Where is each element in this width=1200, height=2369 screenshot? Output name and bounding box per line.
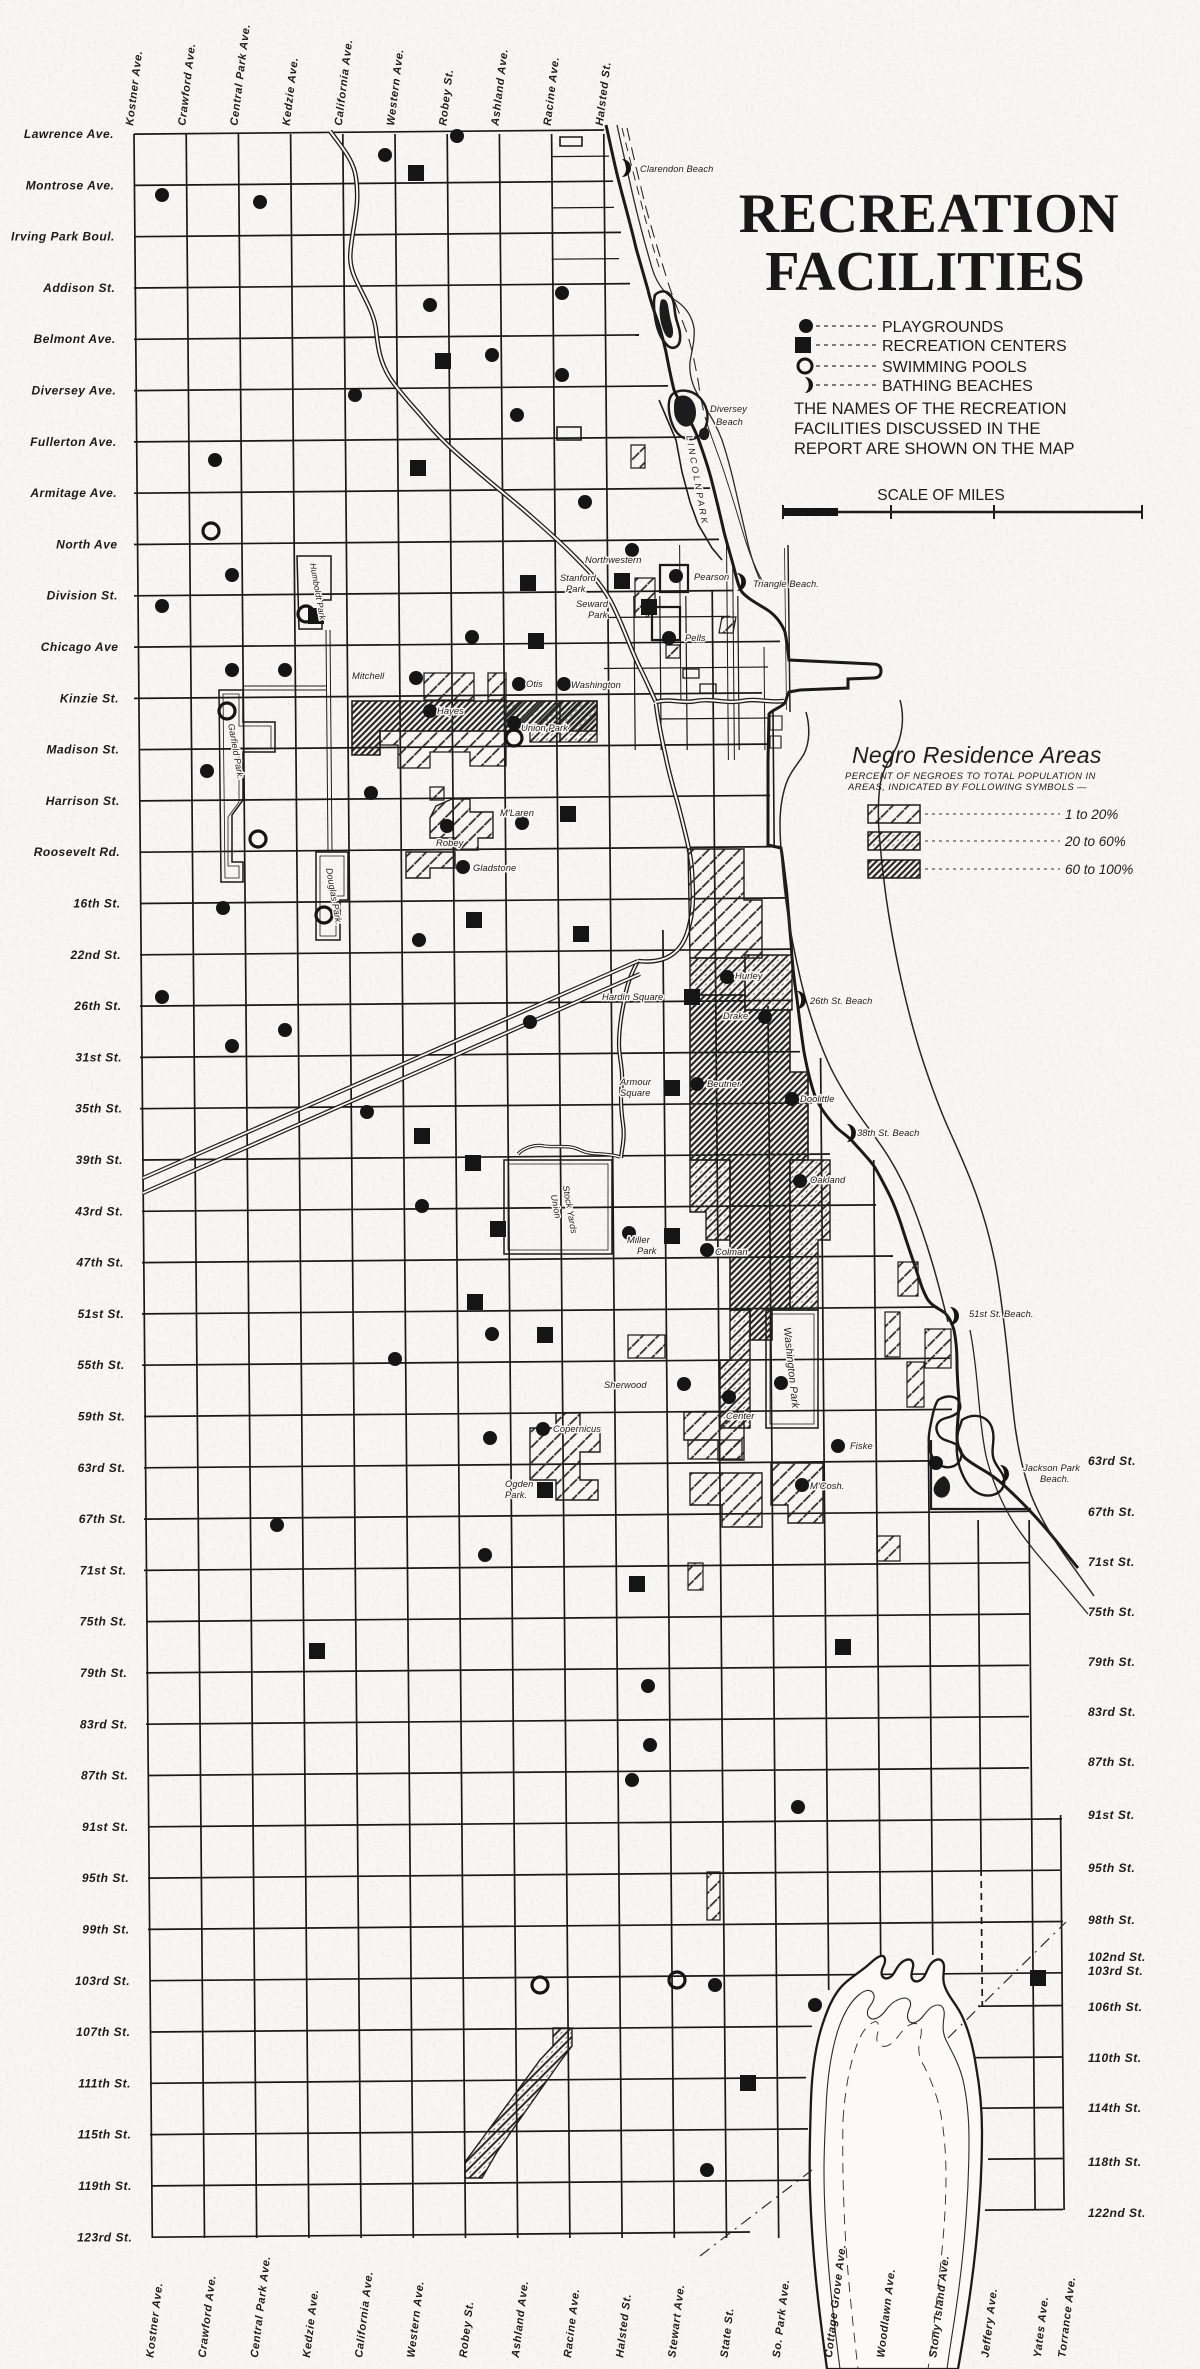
svg-text:119th St.: 119th St. <box>78 2179 132 2193</box>
svg-text:67th St.: 67th St. <box>79 1512 126 1526</box>
svg-text:95th St.: 95th St. <box>1088 1861 1135 1875</box>
svg-text:Ogden: Ogden <box>505 1479 533 1489</box>
svg-text:63rd St.: 63rd St. <box>1088 1454 1136 1468</box>
svg-text:Seward: Seward <box>576 599 609 609</box>
svg-text:Copernicus: Copernicus <box>553 1424 601 1434</box>
svg-text:Mitchell: Mitchell <box>352 671 385 681</box>
svg-text:122nd St.: 122nd St. <box>1088 2206 1146 2220</box>
svg-text:Diversey Ave.: Diversey Ave. <box>31 384 116 398</box>
svg-text:118th St.: 118th St. <box>1088 2155 1142 2169</box>
svg-text:Oakland: Oakland <box>810 1175 846 1185</box>
svg-text:THE NAMES OF THE RECREATION: THE NAMES OF THE RECREATION <box>794 400 1067 418</box>
svg-text:M′Cosh.: M′Cosh. <box>810 1481 844 1491</box>
svg-text:103rd St.: 103rd St. <box>75 1974 130 1988</box>
svg-text:71st St.: 71st St. <box>80 1563 127 1577</box>
svg-text:Park: Park <box>637 1246 658 1256</box>
svg-text:Fiske: Fiske <box>850 1441 873 1451</box>
svg-text:39th St.: 39th St. <box>76 1153 123 1167</box>
svg-text:North Ave: North Ave <box>56 537 117 551</box>
svg-text:Diversey: Diversey <box>710 404 748 414</box>
svg-text:RECREATION: RECREATION <box>739 183 1119 245</box>
svg-text:Madison St.: Madison St. <box>47 743 120 757</box>
svg-text:1 to 20%: 1 to 20% <box>1065 807 1118 822</box>
svg-text:RECREATION CENTERS: RECREATION CENTERS <box>882 338 1067 355</box>
svg-text:Doolittle: Doolittle <box>800 1094 835 1104</box>
svg-text:Jackson Park: Jackson Park <box>1022 1463 1081 1473</box>
svg-text:79th St.: 79th St. <box>80 1666 127 1680</box>
svg-text:Hurley: Hurley <box>735 971 764 981</box>
svg-text:26th St. Beach: 26th St. Beach <box>809 996 872 1006</box>
svg-text:115th St.: 115th St. <box>78 2128 132 2142</box>
svg-text:Lawrence Ave.: Lawrence Ave. <box>24 127 114 141</box>
svg-text:Drake: Drake <box>723 1011 748 1021</box>
svg-text:Fullerton Ave.: Fullerton Ave. <box>30 435 117 449</box>
svg-text:Negro Residence Areas: Negro Residence Areas <box>852 742 1102 768</box>
svg-text:Addison St.: Addison St. <box>42 281 115 295</box>
svg-text:AREAS, INDICATED BY FOLLOWING: AREAS, INDICATED BY FOLLOWING SYMBOLS — <box>847 782 1087 793</box>
svg-text:59th St.: 59th St. <box>78 1410 125 1424</box>
svg-text:79th St.: 79th St. <box>1088 1655 1135 1669</box>
svg-text:83rd St.: 83rd St. <box>80 1717 128 1731</box>
svg-text:51st St. Beach.: 51st St. Beach. <box>969 1309 1034 1319</box>
svg-text:20 to 60%: 20 to 60% <box>1064 834 1126 849</box>
svg-text:31st St.: 31st St. <box>75 1050 122 1064</box>
svg-text:PERCENT OF NEGROES TO TOTAL PO: PERCENT OF NEGROES TO TOTAL POPULATION I… <box>845 771 1096 782</box>
svg-text:Beutner: Beutner <box>707 1079 741 1089</box>
svg-text:Hayes: Hayes <box>437 706 464 716</box>
svg-text:Center: Center <box>726 1411 755 1421</box>
svg-text:Beach: Beach <box>716 417 743 427</box>
svg-text:Division St.: Division St. <box>47 589 118 603</box>
svg-text:Robey: Robey <box>436 838 465 848</box>
svg-text:91st St.: 91st St. <box>1088 1808 1135 1822</box>
svg-text:102nd St.: 102nd St. <box>1088 1950 1146 1964</box>
svg-text:91st St.: 91st St. <box>82 1820 129 1834</box>
svg-text:60 to 100%: 60 to 100% <box>1065 862 1133 877</box>
svg-text:M′Laren: M′Laren <box>500 808 534 818</box>
svg-text:Montrose Ave.: Montrose Ave. <box>26 178 115 192</box>
svg-text:38th St. Beach: 38th St. Beach <box>857 1128 919 1138</box>
svg-text:Stanford: Stanford <box>560 573 597 583</box>
svg-text:95th St.: 95th St. <box>82 1871 129 1885</box>
svg-text:Armour: Armour <box>619 1077 652 1087</box>
svg-text:114th St.: 114th St. <box>1088 2101 1142 2115</box>
svg-text:Union Park: Union Park <box>521 723 569 733</box>
svg-text:Harrison St.: Harrison St. <box>46 794 120 808</box>
svg-text:Pearson: Pearson <box>694 572 729 582</box>
svg-text:35th St.: 35th St. <box>75 1102 122 1116</box>
svg-text:99th St.: 99th St. <box>82 1923 129 1937</box>
svg-text:Gladstone: Gladstone <box>473 863 516 873</box>
svg-text:123rd St.: 123rd St. <box>77 2230 132 2244</box>
svg-text:Otis: Otis <box>526 679 543 689</box>
svg-text:107th St.: 107th St. <box>76 2025 131 2039</box>
svg-text:87th St.: 87th St. <box>81 1769 128 1783</box>
svg-text:Belmont Ave.: Belmont Ave. <box>34 332 116 346</box>
svg-text:Kinzie St.: Kinzie St. <box>60 691 119 705</box>
svg-text:Triangle Beach.: Triangle Beach. <box>753 579 819 589</box>
svg-text:Park.: Park. <box>505 1490 527 1500</box>
svg-text:71st St.: 71st St. <box>1088 1555 1135 1569</box>
svg-text:FACILITIES: FACILITIES <box>765 241 1085 303</box>
svg-text:Irving Park Boul.: Irving Park Boul. <box>11 230 115 244</box>
svg-text:43rd St.: 43rd St. <box>74 1204 123 1218</box>
svg-text:26th St.: 26th St. <box>73 999 121 1013</box>
svg-text:SCALE OF MILES: SCALE OF MILES <box>877 487 1004 504</box>
svg-text:Sherwood: Sherwood <box>604 1380 647 1390</box>
svg-text:Clarendon Beach: Clarendon Beach <box>640 164 713 174</box>
svg-text:67th St.: 67th St. <box>1088 1505 1135 1519</box>
svg-text:47th St.: 47th St. <box>75 1256 123 1270</box>
svg-text:87th St.: 87th St. <box>1088 1755 1135 1769</box>
svg-text:Chicago Ave: Chicago Ave <box>41 640 119 654</box>
svg-text:75th St.: 75th St. <box>1088 1605 1135 1619</box>
svg-text:Northwestern: Northwestern <box>585 555 642 565</box>
svg-text:63rd St.: 63rd St. <box>78 1461 126 1475</box>
svg-text:Park: Park <box>588 610 609 620</box>
svg-text:16th St.: 16th St. <box>73 897 120 911</box>
svg-text:Colman: Colman <box>715 1247 748 1257</box>
svg-text:55th St.: 55th St. <box>77 1358 124 1372</box>
svg-text:FACILITIES DISCUSSED IN THE: FACILITIES DISCUSSED IN THE <box>794 420 1040 438</box>
svg-text:Park: Park <box>566 584 587 594</box>
svg-text:PLAYGROUNDS: PLAYGROUNDS <box>882 319 1004 336</box>
svg-text:REPORT ARE SHOWN ON THE MAP: REPORT ARE SHOWN ON THE MAP <box>794 440 1075 458</box>
svg-text:106th St.: 106th St. <box>1088 2000 1143 2014</box>
svg-text:SWIMMING POOLS: SWIMMING POOLS <box>882 359 1027 376</box>
svg-text:22nd St.: 22nd St. <box>69 948 121 962</box>
svg-text:Miller: Miller <box>627 1235 651 1245</box>
svg-text:98th St.: 98th St. <box>1088 1913 1135 1927</box>
svg-text:Beach.: Beach. <box>1040 1474 1070 1484</box>
svg-text:Pells: Pells <box>685 633 706 643</box>
svg-text:Washington: Washington <box>571 680 621 690</box>
svg-text:Roosevelt Rd.: Roosevelt Rd. <box>34 845 121 859</box>
svg-text:BATHING BEACHES: BATHING BEACHES <box>882 378 1033 395</box>
svg-text:51st St.: 51st St. <box>78 1307 125 1321</box>
svg-text:75th St.: 75th St. <box>80 1615 127 1629</box>
svg-text:Square: Square <box>620 1088 651 1098</box>
svg-text:110th St.: 110th St. <box>1088 2051 1142 2065</box>
svg-text:111th St.: 111th St. <box>78 2076 131 2090</box>
svg-text:103rd St.: 103rd St. <box>1088 1964 1143 1978</box>
svg-text:Hardin Square: Hardin Square <box>602 992 663 1002</box>
svg-text:Armitage Ave.: Armitage Ave. <box>29 486 117 500</box>
svg-text:83rd St.: 83rd St. <box>1088 1705 1136 1719</box>
